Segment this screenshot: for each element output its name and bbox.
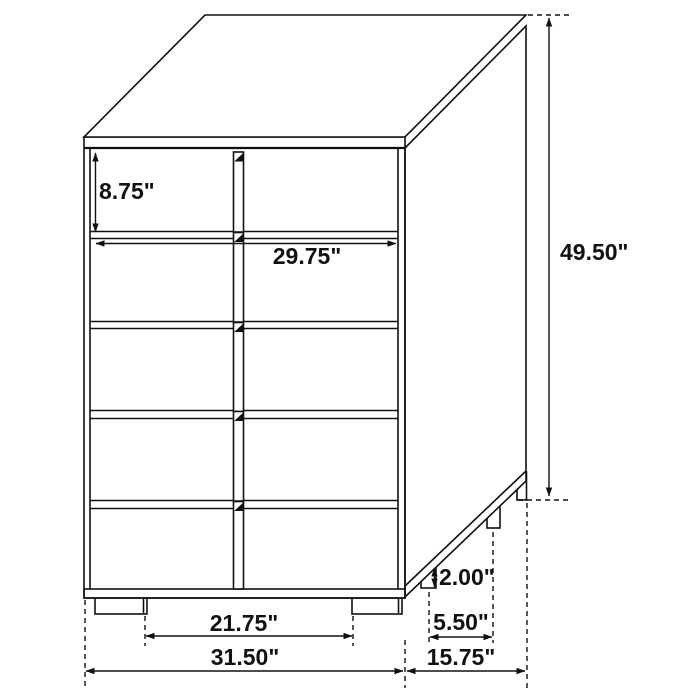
drawer-dividers <box>234 152 244 589</box>
chest-body <box>84 15 527 614</box>
drawer-divider <box>234 502 244 590</box>
chest-drawing-canvas: 8.75" 29.75" 49.50" 2.00" 5.50" 21.75" 3… <box>0 0 700 700</box>
furniture-dimension-diagram: 8.75" 29.75" 49.50" 2.00" 5.50" 21.75" 3… <box>0 0 700 700</box>
label-opening-width: 29.75" <box>273 243 341 269</box>
label-side-leg-spacing: 5.50" <box>433 609 489 635</box>
label-overall-depth: 15.75" <box>427 644 495 670</box>
drawer-divider <box>234 152 244 232</box>
drawer-divider <box>234 412 244 502</box>
drawer-divider <box>234 233 244 323</box>
label-overall-height: 49.50" <box>560 239 628 265</box>
front-face-frame <box>84 137 405 598</box>
label-drawer-height: 8.75" <box>99 178 155 204</box>
label-leg-height: 2.00" <box>439 564 495 590</box>
label-overall-width: 31.50" <box>211 644 279 670</box>
label-front-leg-spacing: 21.75" <box>210 610 278 636</box>
drawer-divider <box>234 323 244 412</box>
front-bottom-rail <box>84 589 405 598</box>
